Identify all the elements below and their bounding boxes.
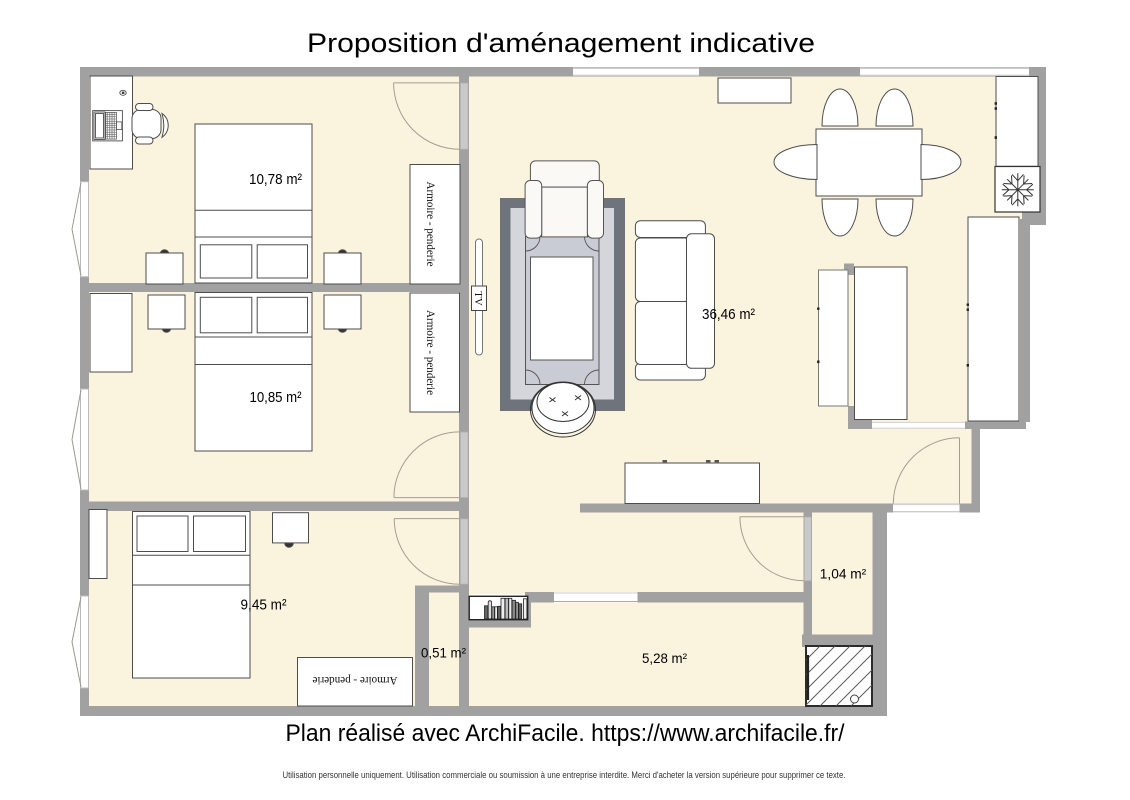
svg-text:9,45 m²: 9,45 m² — [241, 597, 287, 614]
svg-text:Plan réalisé avec ArchiFacile.: Plan réalisé avec ArchiFacile. https://w… — [286, 720, 845, 747]
svg-text:1,04 m²: 1,04 m² — [820, 566, 867, 582]
svg-text:10,85 m²: 10,85 m² — [250, 389, 302, 406]
svg-text:Armoire - penderie: Armoire - penderie — [424, 310, 438, 395]
svg-text:TV: TV — [472, 291, 484, 306]
svg-text:Armoire - penderie: Armoire - penderie — [313, 674, 398, 688]
svg-text:36,46 m²: 36,46 m² — [702, 306, 755, 323]
svg-text:0,51 m²: 0,51 m² — [421, 645, 466, 661]
svg-text:5,28 m²: 5,28 m² — [642, 650, 687, 666]
svg-text:10,78 m²: 10,78 m² — [249, 171, 302, 188]
svg-text:Armoire - penderie: Armoire - penderie — [424, 182, 438, 267]
svg-text:Utilisation personnelle unique: Utilisation personnelle uniquement. Util… — [283, 770, 846, 780]
svg-text:Proposition d'aménagement indi: Proposition d'aménagement indicative — [307, 28, 815, 58]
